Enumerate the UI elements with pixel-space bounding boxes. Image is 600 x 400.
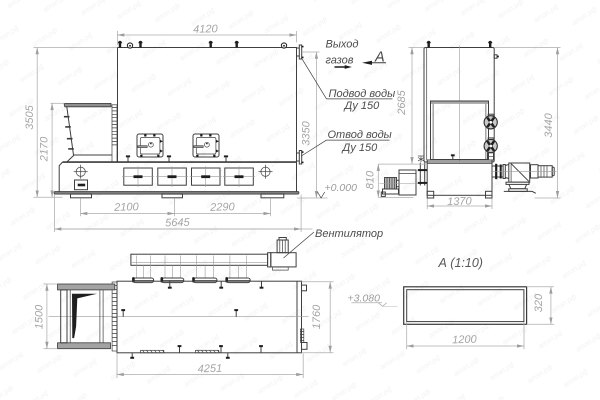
- svg-text:1370: 1370: [447, 195, 473, 208]
- svg-text:Ду 150: Ду 150: [341, 142, 379, 154]
- svg-text:1760: 1760: [311, 304, 323, 329]
- svg-text:Подвод воды: Подвод воды: [329, 88, 396, 100]
- svg-text:А: А: [374, 50, 385, 66]
- svg-text:1500: 1500: [34, 304, 46, 329]
- svg-text:1200: 1200: [452, 334, 478, 347]
- svg-text:320: 320: [533, 293, 545, 312]
- svg-text:2685: 2685: [396, 89, 408, 115]
- svg-text:3350: 3350: [301, 120, 313, 145]
- svg-text:газов: газов: [326, 55, 354, 67]
- svg-text:810: 810: [365, 170, 377, 189]
- svg-text:Отвод воды: Отвод воды: [328, 129, 392, 141]
- svg-text:Ду 150: Ду 150: [343, 100, 381, 112]
- svg-text:А (1:10): А (1:10): [438, 256, 483, 270]
- svg-text:5645: 5645: [165, 217, 191, 230]
- svg-text:3440: 3440: [543, 112, 555, 137]
- svg-text:4120: 4120: [193, 23, 219, 36]
- svg-text:+0.000: +0.000: [325, 182, 358, 194]
- svg-text:Вентилятор: Вентилятор: [315, 228, 383, 240]
- svg-text:2290: 2290: [209, 201, 236, 214]
- svg-text:2170: 2170: [39, 136, 51, 162]
- svg-text:4251: 4251: [198, 363, 223, 376]
- svg-text:2100: 2100: [113, 201, 140, 214]
- svg-text:Выход: Выход: [326, 39, 359, 51]
- svg-text:3505: 3505: [24, 104, 36, 129]
